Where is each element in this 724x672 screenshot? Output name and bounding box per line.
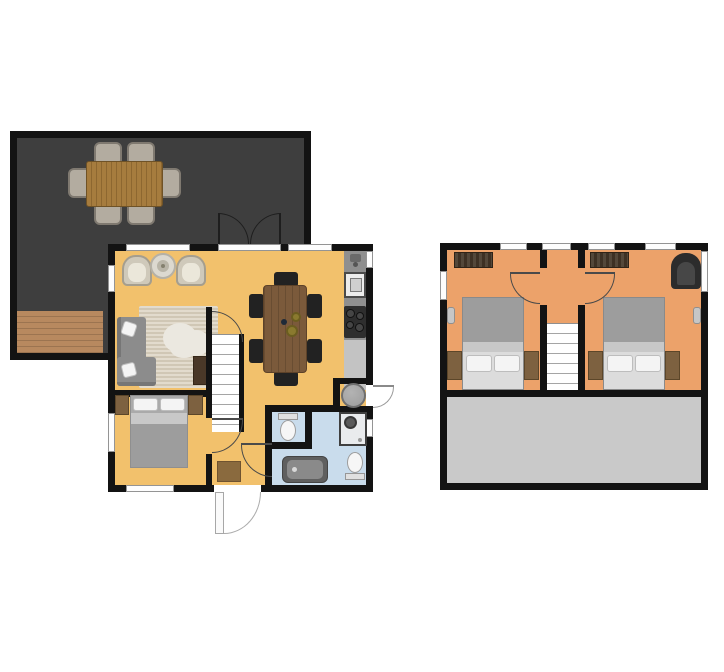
stairwell-door-gap bbox=[578, 268, 585, 305]
nightstand bbox=[524, 351, 539, 380]
shower-head bbox=[344, 416, 357, 429]
wall-wc-bottom bbox=[272, 442, 312, 449]
window bbox=[108, 413, 115, 452]
tv-cabinet bbox=[193, 356, 207, 385]
boiler-door-gap bbox=[366, 385, 373, 406]
dining-table bbox=[263, 285, 307, 373]
dining-chair bbox=[249, 294, 264, 318]
sheepskin bbox=[170, 338, 198, 358]
toilet-tank bbox=[345, 473, 365, 480]
bed-pillow bbox=[607, 355, 633, 372]
outdoor-dining-table bbox=[86, 161, 163, 207]
wall-bath-top bbox=[265, 405, 340, 412]
table-plate bbox=[291, 312, 301, 322]
bed-pillow bbox=[494, 355, 520, 372]
dresser bbox=[590, 252, 629, 268]
floor-plan-canvas bbox=[0, 0, 724, 672]
burner bbox=[346, 309, 355, 318]
wall-sconce bbox=[447, 307, 455, 324]
entry-door-gap bbox=[214, 485, 261, 492]
wall-sconce bbox=[693, 307, 701, 324]
bed-pillow bbox=[635, 355, 661, 372]
toilet-tank bbox=[278, 413, 298, 420]
dining-chair bbox=[307, 294, 322, 318]
dining-chair bbox=[249, 339, 264, 363]
window bbox=[542, 243, 571, 250]
terrace-door-sill bbox=[218, 244, 281, 251]
window bbox=[366, 251, 373, 268]
roof-area bbox=[447, 397, 701, 483]
window bbox=[500, 243, 527, 250]
terrace-door-leaf bbox=[279, 213, 281, 244]
boiler bbox=[341, 383, 366, 408]
table-plate bbox=[286, 325, 298, 337]
nightstand bbox=[115, 395, 129, 415]
bed-duvet bbox=[131, 424, 187, 467]
faucet bbox=[350, 254, 361, 262]
window bbox=[440, 271, 447, 300]
window bbox=[288, 244, 332, 251]
entry-door-leaf bbox=[215, 492, 224, 534]
shower-drain bbox=[358, 438, 362, 442]
bed-pillow bbox=[160, 398, 185, 411]
nightstand bbox=[447, 351, 462, 380]
plant-center bbox=[161, 264, 165, 268]
window bbox=[645, 243, 676, 250]
entry-door-arc bbox=[224, 492, 261, 534]
window bbox=[366, 419, 373, 437]
sink-bowl bbox=[350, 278, 362, 292]
doormat bbox=[217, 461, 241, 482]
nightstand bbox=[665, 351, 680, 380]
nightstand bbox=[188, 395, 203, 415]
armchair-seat bbox=[128, 263, 146, 282]
stairwell-door-gap bbox=[540, 268, 547, 305]
bathtub-drain bbox=[292, 467, 297, 472]
dining-chair bbox=[307, 339, 322, 363]
bed-fold bbox=[604, 342, 664, 352]
armchair-seat bbox=[182, 263, 200, 282]
terrace-door-leaf bbox=[218, 213, 220, 244]
toilet-bowl bbox=[280, 420, 296, 441]
bed-pillow bbox=[466, 355, 492, 372]
window bbox=[126, 485, 174, 492]
faucet-knob bbox=[353, 262, 358, 267]
burner bbox=[346, 321, 354, 329]
bed-fold bbox=[131, 413, 187, 424]
bed-fold bbox=[463, 342, 523, 352]
burner bbox=[356, 312, 364, 320]
window bbox=[701, 251, 708, 292]
toilet-bowl bbox=[347, 452, 363, 473]
burner bbox=[355, 323, 364, 332]
wood-deck bbox=[17, 311, 103, 353]
nightstand bbox=[588, 351, 603, 380]
window bbox=[588, 243, 615, 250]
wall-upper-divider bbox=[440, 390, 708, 397]
dresser bbox=[454, 252, 493, 268]
upper-stairs bbox=[547, 323, 578, 390]
table-decor-dot bbox=[281, 319, 287, 325]
bed-pillow bbox=[133, 398, 158, 411]
window bbox=[108, 265, 115, 292]
dining-chair bbox=[274, 371, 298, 386]
boiler-door-arc bbox=[373, 387, 394, 408]
dark-armchair-seat bbox=[677, 262, 695, 285]
window bbox=[126, 244, 190, 251]
